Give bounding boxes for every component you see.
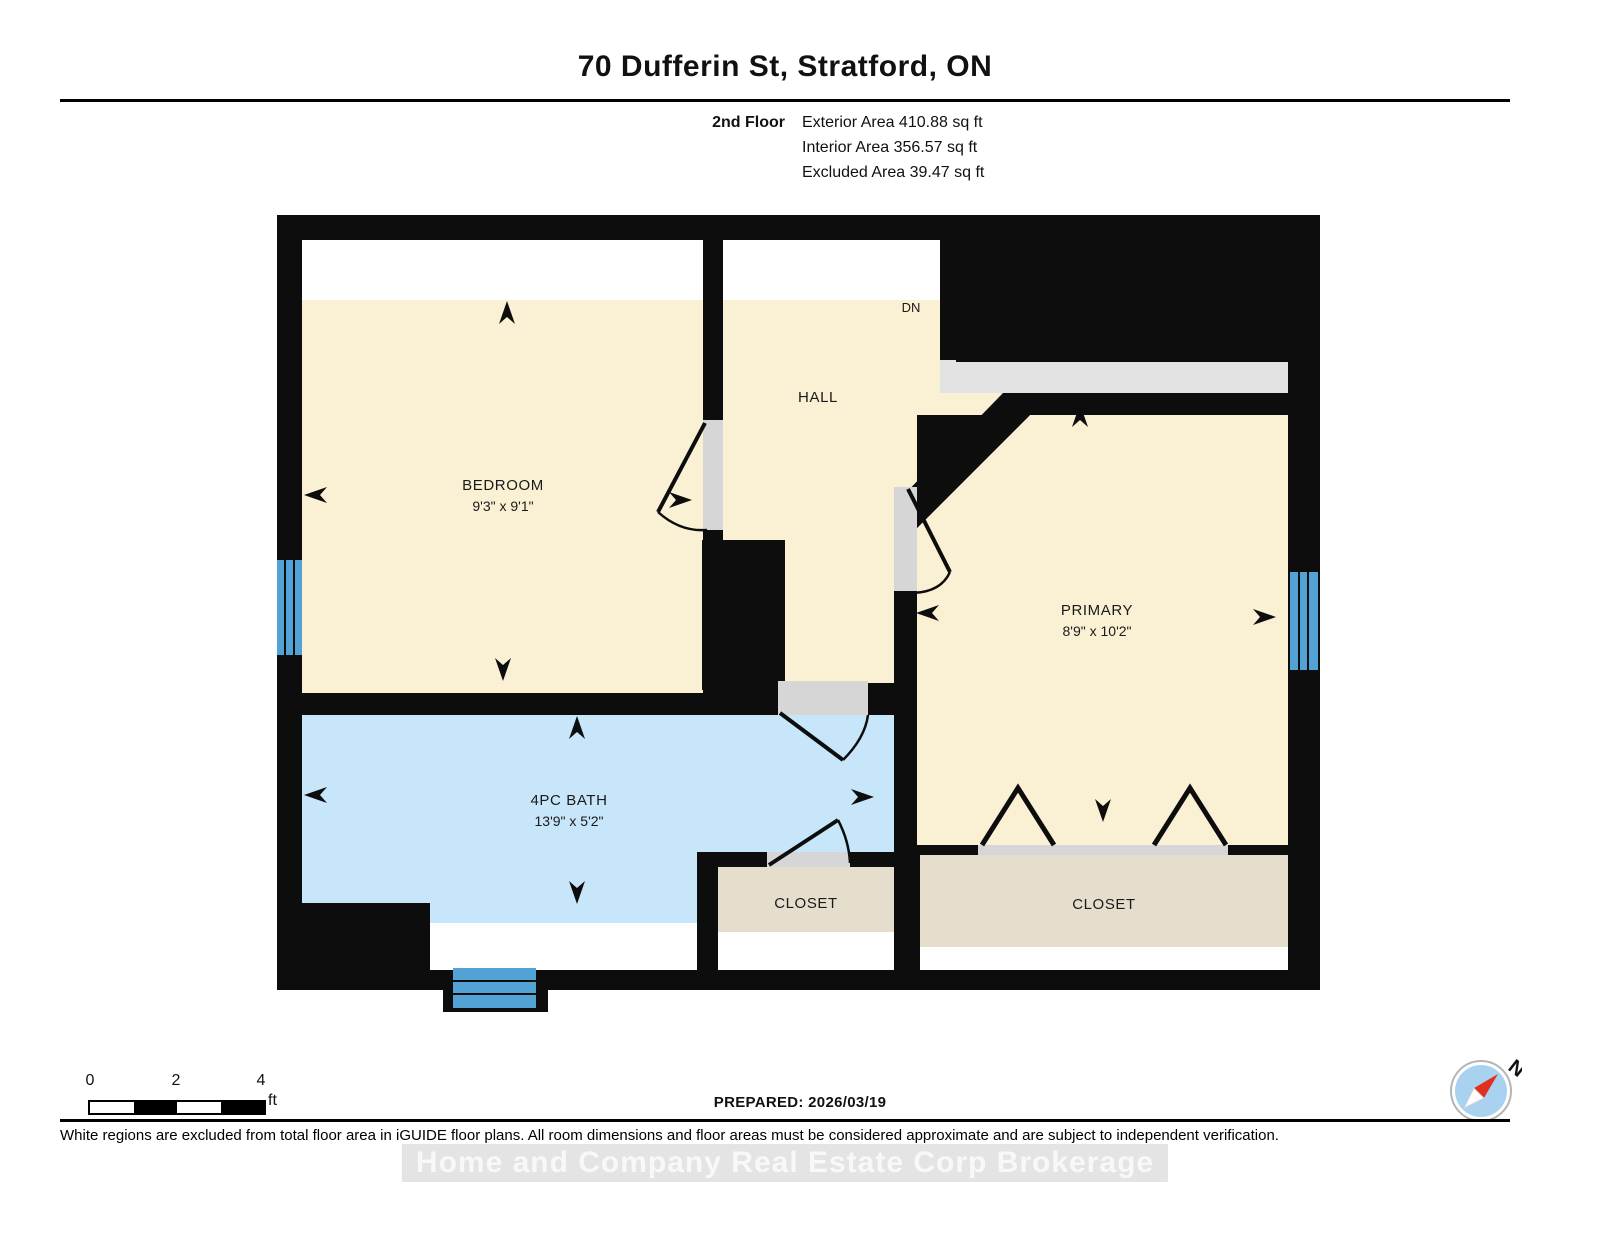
- area-summary: 2nd Floor Exterior Area 410.88 sq ft Int…: [60, 110, 1510, 185]
- disclaimer-text: White regions are excluded from total fl…: [60, 1127, 1520, 1144]
- bath-floor-lower: [430, 903, 697, 923]
- bath-bottom-window: [453, 968, 536, 1008]
- bath-floor-left: [302, 852, 697, 903]
- bedroom-excluded-area: [302, 240, 703, 300]
- hall-bath-wall-block: [702, 540, 785, 690]
- closet-right-excluded-area: [920, 947, 1288, 970]
- closet-right-label: CLOSET: [1072, 896, 1136, 913]
- primary-window: [1290, 572, 1318, 670]
- scale-tick-2: 2: [172, 1072, 181, 1090]
- bedroom-window: [277, 560, 302, 655]
- scale-tick-0: 0: [86, 1072, 95, 1090]
- hall-label: HALL: [798, 389, 838, 406]
- header-divider: [60, 99, 1510, 102]
- scale-unit-label: ft: [268, 1092, 277, 1110]
- closet-center-label: CLOSET: [774, 895, 838, 912]
- primary-dims: 8'9" x 10'2": [1063, 623, 1132, 639]
- bedroom-door-opening: [703, 420, 723, 530]
- bedroom-dims: 9'3" x 9'1": [472, 498, 533, 514]
- primary-label: PRIMARY: [1061, 602, 1133, 619]
- floorplan-page: 70 Dufferin St, Stratford, ON 2nd Floor …: [0, 0, 1600, 1237]
- bath-floor-main: [302, 715, 894, 852]
- bath-label: 4PC BATH: [530, 792, 607, 809]
- closet-center-excluded-area: [718, 932, 894, 970]
- scale-bar: [88, 1100, 266, 1115]
- bath-excluded-area: [430, 923, 697, 970]
- stairs-dn-label: DN: [902, 300, 921, 315]
- bath-dims: 13'9" x 5'2": [535, 813, 604, 829]
- watermark-text: Home and Company Real Estate Corp Broker…: [402, 1144, 1168, 1182]
- stairs-landing: [940, 360, 1288, 393]
- compass-icon: N: [1440, 1055, 1522, 1137]
- excluded-area-text: Excluded Area 39.47 sq ft: [802, 160, 1510, 185]
- exterior-area-text: Exterior Area 410.88 sq ft: [802, 110, 1510, 135]
- floor-label: 2nd Floor: [60, 110, 785, 135]
- interior-area-text: Interior Area 356.57 sq ft: [802, 135, 1510, 160]
- page-title: 70 Dufferin St, Stratford, ON: [60, 50, 1510, 84]
- bath-door-opening: [778, 681, 868, 715]
- closet-right-bifold-track: [978, 845, 1228, 855]
- bedroom-label: BEDROOM: [462, 477, 544, 494]
- bedroom-floor: [302, 300, 703, 693]
- scale-tick-4: 4: [257, 1072, 266, 1090]
- footer-divider: [60, 1119, 1510, 1122]
- floor-plan: BEDROOM 9'3" x 9'1" HALL DN PRIMARY 8'9"…: [277, 215, 1320, 1015]
- prepared-date: PREPARED: 2026/03/19: [714, 1094, 886, 1111]
- hall-excluded-area: [723, 240, 940, 300]
